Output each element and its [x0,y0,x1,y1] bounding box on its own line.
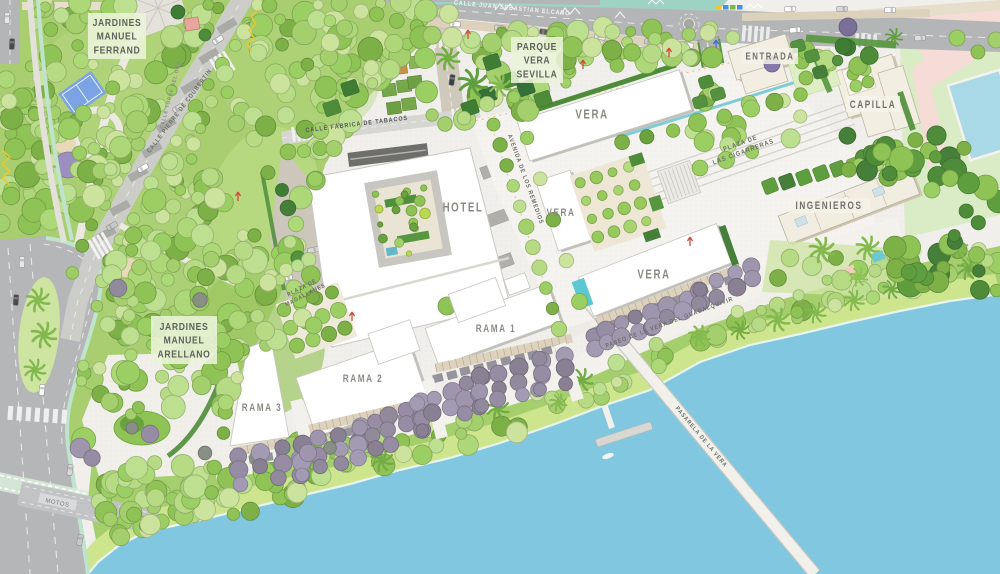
svg-text:ENTRADA: ENTRADA [746,51,795,62]
svg-text:VERA: VERA [575,108,608,122]
svg-text:VERA: VERA [637,268,670,282]
svg-text:JARDINESMANUELFERRAND: JARDINESMANUELFERRAND [93,17,142,57]
svg-text:CAPILLA: CAPILLA [850,99,896,111]
svg-text:INGENIEROS: INGENIEROS [796,200,863,212]
svg-text:VERA: VERA [547,207,576,219]
svg-text:RAMA 2: RAMA 2 [343,373,383,385]
svg-text:HOTEL: HOTEL [443,201,484,215]
svg-text:RAMA 1: RAMA 1 [476,323,516,335]
svg-text:JARDINESMANUELARELLANO: JARDINESMANUELARELLANO [157,321,210,361]
svg-text:RAMA 3: RAMA 3 [242,402,282,414]
